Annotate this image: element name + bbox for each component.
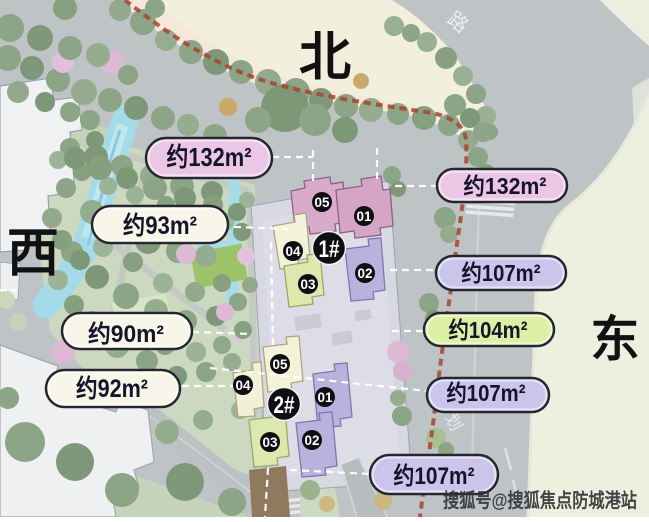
svg-text:约107m²: 约107m² — [462, 260, 541, 286]
svg-text:东: 东 — [590, 313, 639, 367]
svg-text:05: 05 — [273, 357, 288, 372]
svg-text:搜狐号@搜狐焦点防城港站: 搜狐号@搜狐焦点防城港站 — [443, 489, 637, 512]
svg-text:约132m²: 约132m² — [464, 173, 547, 199]
svg-text:04: 04 — [236, 378, 251, 393]
svg-text:北: 北 — [299, 29, 351, 87]
svg-text:01: 01 — [357, 209, 372, 224]
svg-text:03: 03 — [301, 277, 316, 292]
svg-text:04: 04 — [286, 244, 301, 259]
svg-text:约107m²: 约107m² — [394, 462, 475, 490]
svg-text:约132m²: 约132m² — [167, 142, 252, 172]
svg-text:03: 03 — [263, 435, 278, 450]
svg-text:约92m²: 约92m² — [76, 375, 148, 403]
svg-text:02: 02 — [305, 433, 320, 448]
svg-text:02: 02 — [358, 266, 373, 281]
svg-text:约107m²: 约107m² — [447, 380, 526, 406]
svg-text:约104m²: 约104m² — [449, 317, 528, 343]
svg-text:约90m²: 约90m² — [88, 320, 164, 348]
svg-text:西: 西 — [7, 225, 59, 283]
svg-text:约93m²: 约93m² — [123, 212, 197, 240]
svg-text:2#: 2# — [274, 392, 295, 419]
svg-text:05: 05 — [315, 195, 330, 210]
svg-text:1#: 1# — [319, 236, 340, 263]
svg-text:01: 01 — [318, 390, 333, 405]
